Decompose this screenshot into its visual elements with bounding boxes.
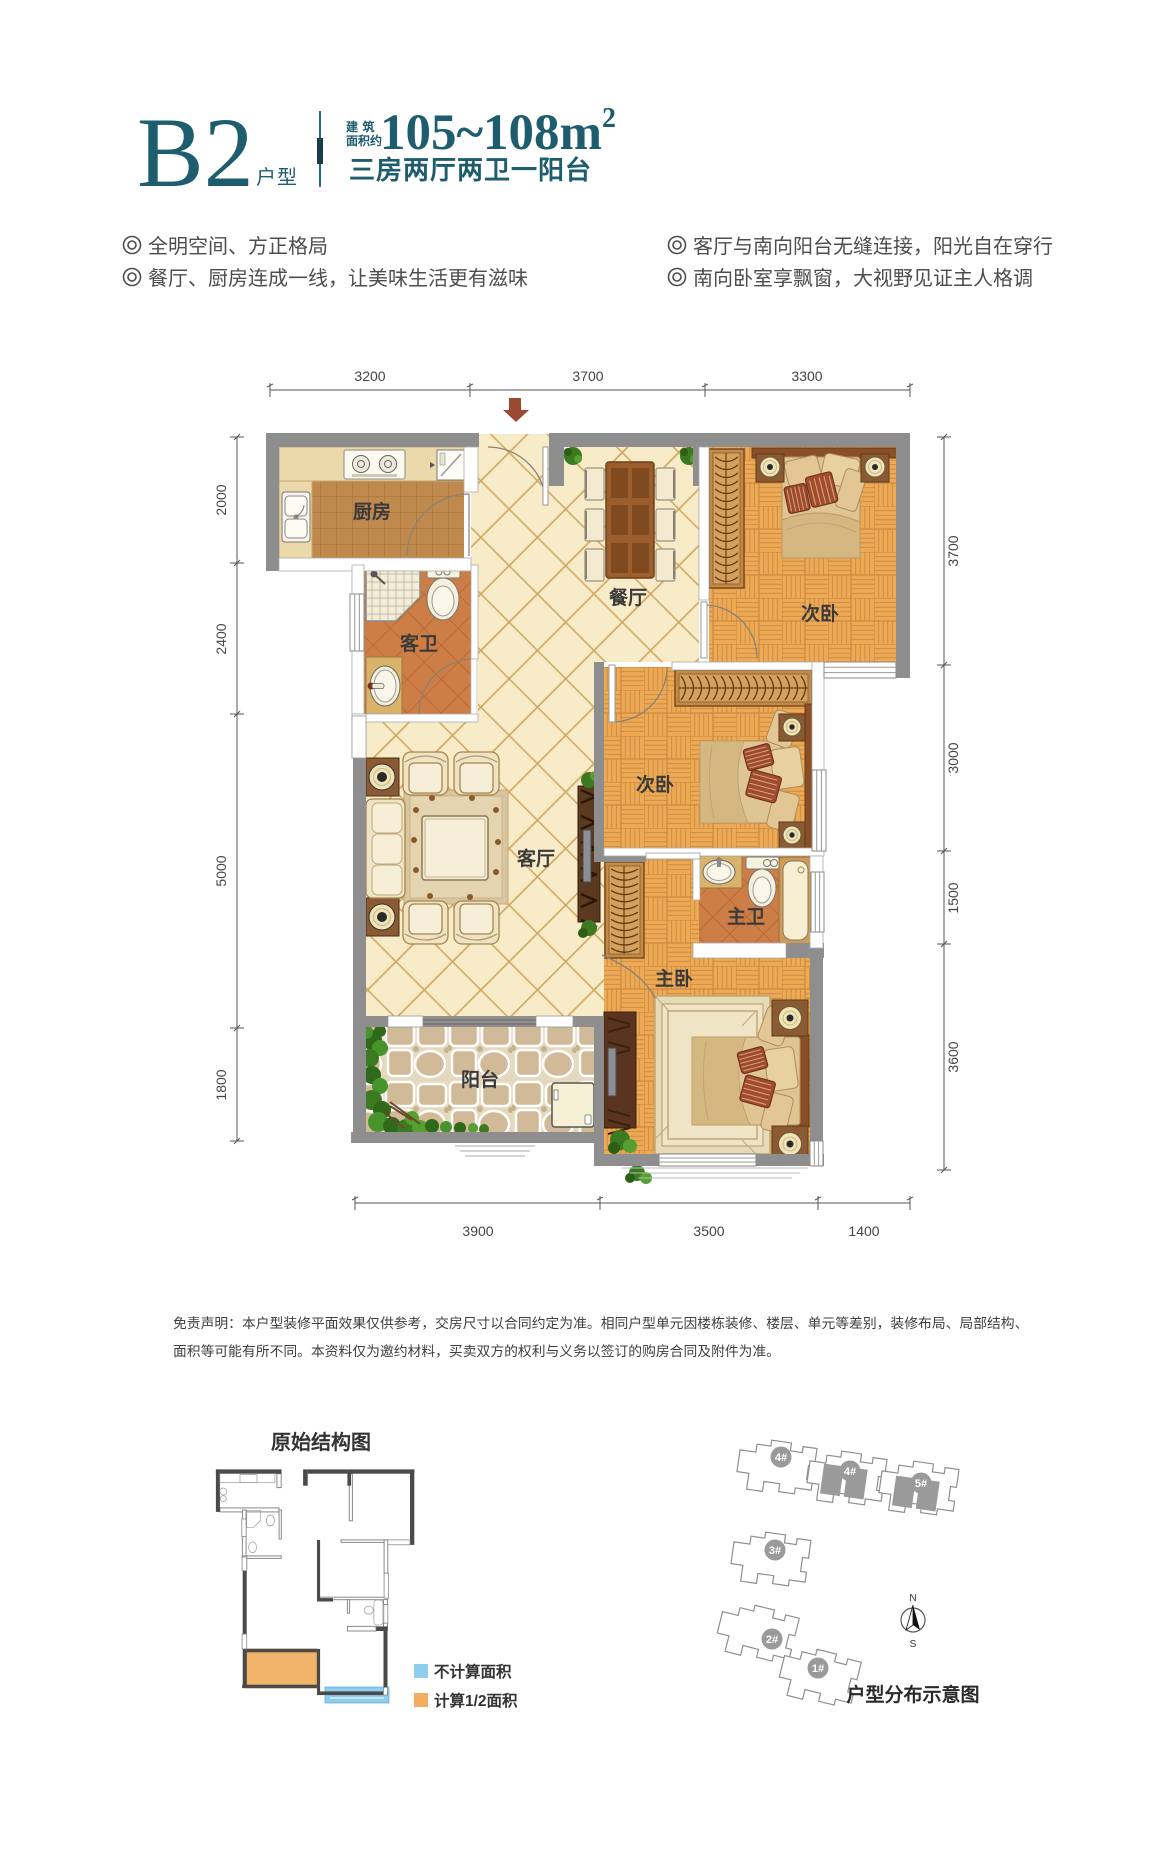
svg-text:2#: 2#	[766, 1634, 778, 1646]
svg-text:105~108m2: 105~108m2	[380, 103, 616, 161]
svg-text:3900: 3900	[462, 1223, 493, 1239]
svg-text:次卧: 次卧	[801, 602, 839, 625]
svg-text:5#: 5#	[915, 1478, 927, 1490]
svg-text:三房两厅两卫一阳台: 三房两厅两卫一阳台	[349, 155, 592, 185]
svg-text:5000: 5000	[213, 855, 229, 886]
svg-text:户型: 户型	[256, 166, 298, 189]
svg-text:3500: 3500	[693, 1223, 724, 1239]
svg-text:客厅: 客厅	[517, 847, 555, 870]
svg-text:1#: 1#	[812, 1663, 824, 1675]
svg-text:不计算面积: 不计算面积	[434, 1662, 512, 1681]
svg-text:建筑: 建筑	[345, 119, 379, 134]
svg-text:3600: 3600	[945, 1041, 961, 1072]
svg-text:4#: 4#	[775, 1452, 787, 1464]
svg-text:3700: 3700	[572, 368, 603, 384]
svg-text:客卫: 客卫	[400, 632, 438, 655]
svg-text:面积等可能有所不同。本资料仅为邀约材料，买卖双方的权利与义务: 面积等可能有所不同。本资料仅为邀约材料，买卖双方的权利与义务以签订的购房合同及附…	[173, 1343, 780, 1359]
svg-text:S: S	[910, 1639, 917, 1650]
svg-text:餐厅: 餐厅	[609, 586, 647, 609]
svg-text:B2: B2	[137, 97, 254, 208]
svg-text:全明空间、方正格局: 全明空间、方正格局	[148, 235, 328, 258]
svg-text:阳台: 阳台	[461, 1068, 499, 1091]
svg-text:原始结构图: 原始结构图	[271, 1430, 371, 1454]
svg-text:3#: 3#	[769, 1545, 781, 1557]
svg-text:主卧: 主卧	[655, 968, 693, 990]
svg-text:2400: 2400	[213, 623, 229, 654]
svg-text:1400: 1400	[848, 1223, 879, 1239]
svg-text:4#: 4#	[844, 1466, 856, 1478]
svg-text:3000: 3000	[945, 742, 961, 773]
svg-text:1500: 1500	[945, 882, 961, 913]
svg-text:厨房: 厨房	[353, 500, 391, 523]
svg-text:N: N	[909, 1593, 916, 1604]
svg-text:餐厅、厨房连成一线，让美味生活更有滋味: 餐厅、厨房连成一线，让美味生活更有滋味	[148, 267, 528, 290]
svg-text:免责声明：本户型装修平面效果仅供参考，交房尺寸以合同约定为准: 免责声明：本户型装修平面效果仅供参考，交房尺寸以合同约定为准。相同户型单元因楼栋…	[173, 1315, 1028, 1331]
svg-text:2000: 2000	[213, 484, 229, 515]
svg-text:3700: 3700	[945, 535, 961, 566]
svg-text:计算1/2面积: 计算1/2面积	[434, 1691, 518, 1710]
svg-text:客厅与南向阳台无缝连接，阳光自在穿行: 客厅与南向阳台无缝连接，阳光自在穿行	[693, 235, 1053, 258]
svg-text:3300: 3300	[791, 368, 822, 384]
svg-text:户型分布示意图: 户型分布示意图	[846, 1683, 979, 1706]
svg-text:1800: 1800	[213, 1069, 229, 1100]
svg-text:面积约: 面积约	[346, 133, 382, 148]
svg-text:次卧: 次卧	[636, 773, 674, 796]
svg-text:3200: 3200	[354, 368, 385, 384]
svg-text:主卫: 主卫	[727, 906, 765, 928]
svg-text:南向卧室享飘窗，大视野见证主人格调: 南向卧室享飘窗，大视野见证主人格调	[693, 267, 1033, 290]
